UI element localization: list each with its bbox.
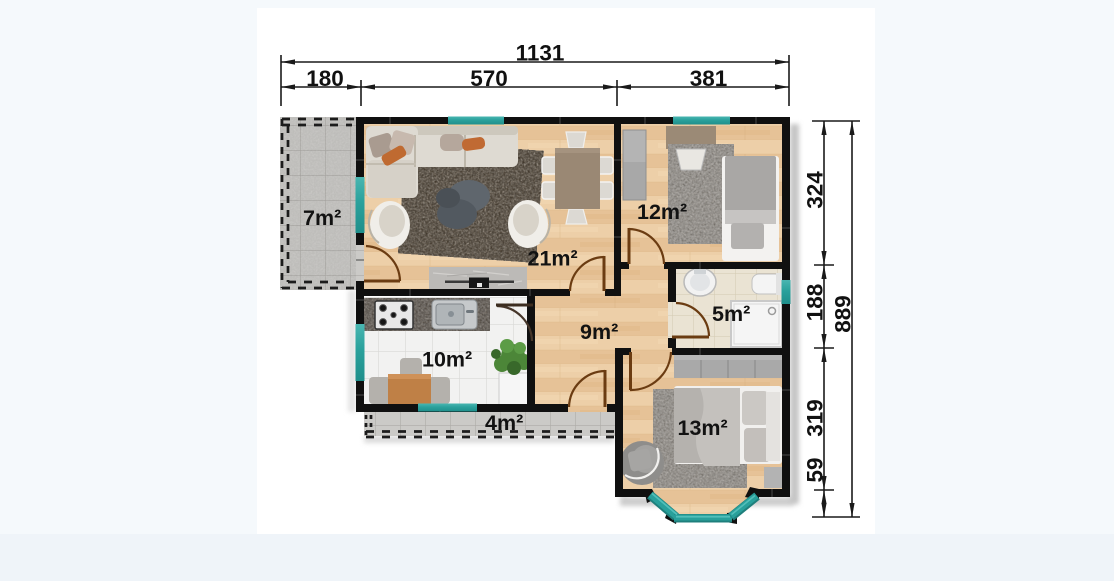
svg-text:319: 319 [803,399,828,437]
svg-text:188: 188 [803,284,828,322]
svg-text:381: 381 [690,66,728,91]
svg-text:21m²: 21m² [528,247,578,271]
svg-text:889: 889 [831,295,856,333]
svg-text:4m²: 4m² [485,411,523,435]
svg-text:5m²: 5m² [712,302,750,326]
svg-text:12m²: 12m² [637,200,687,224]
svg-text:570: 570 [470,66,508,91]
svg-text:10m²: 10m² [422,348,472,372]
svg-text:9m²: 9m² [580,320,618,344]
svg-text:180: 180 [306,66,344,91]
svg-text:13m²: 13m² [678,416,728,440]
svg-text:7m²: 7m² [303,206,341,230]
svg-text:324: 324 [803,171,828,209]
svg-text:1131: 1131 [516,41,565,66]
svg-text:59: 59 [803,457,828,482]
